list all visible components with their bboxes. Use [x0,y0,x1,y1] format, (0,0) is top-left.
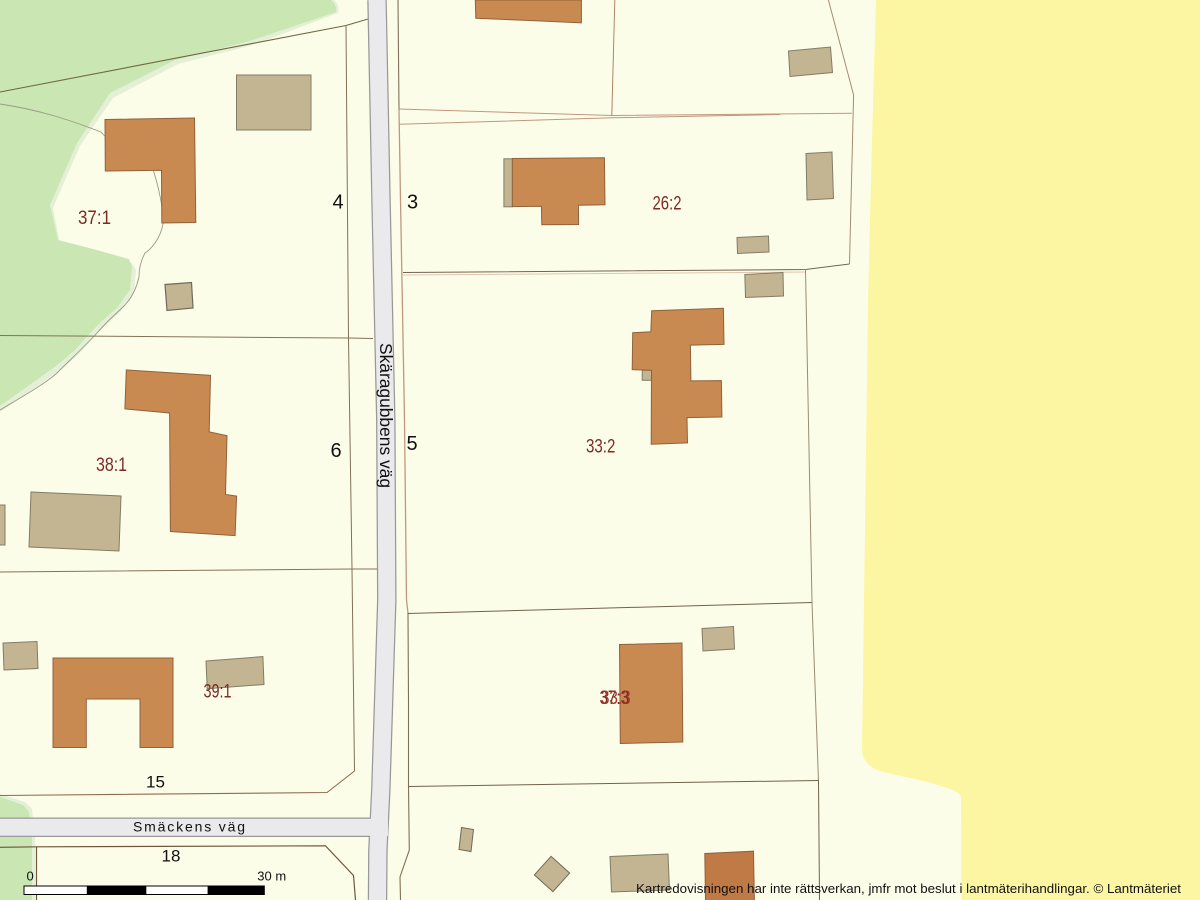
svg-text:6: 6 [331,440,342,462]
svg-text:0: 0 [27,869,34,884]
svg-text:18: 18 [162,847,181,866]
svg-text:Kartredovisningen har inte rät: Kartredovisningen har inte rättsverkan, … [636,882,1182,896]
svg-text:30 m: 30 m [257,869,286,884]
svg-text:3: 3 [407,191,418,213]
svg-text:33:3: 33:3 [601,688,631,709]
svg-text:37:1: 37:1 [78,208,111,229]
svg-text:Smäckens väg: Smäckens väg [133,819,245,835]
svg-text:4: 4 [333,191,344,213]
svg-text:38:1: 38:1 [96,455,127,476]
svg-text:39:1: 39:1 [204,682,232,703]
svg-text:Skäragubbens väg: Skäragubbens väg [376,343,396,488]
svg-text:15: 15 [146,773,165,792]
svg-text:33:2: 33:2 [586,437,615,458]
svg-text:5: 5 [407,433,418,455]
svg-text:26:2: 26:2 [653,194,682,215]
